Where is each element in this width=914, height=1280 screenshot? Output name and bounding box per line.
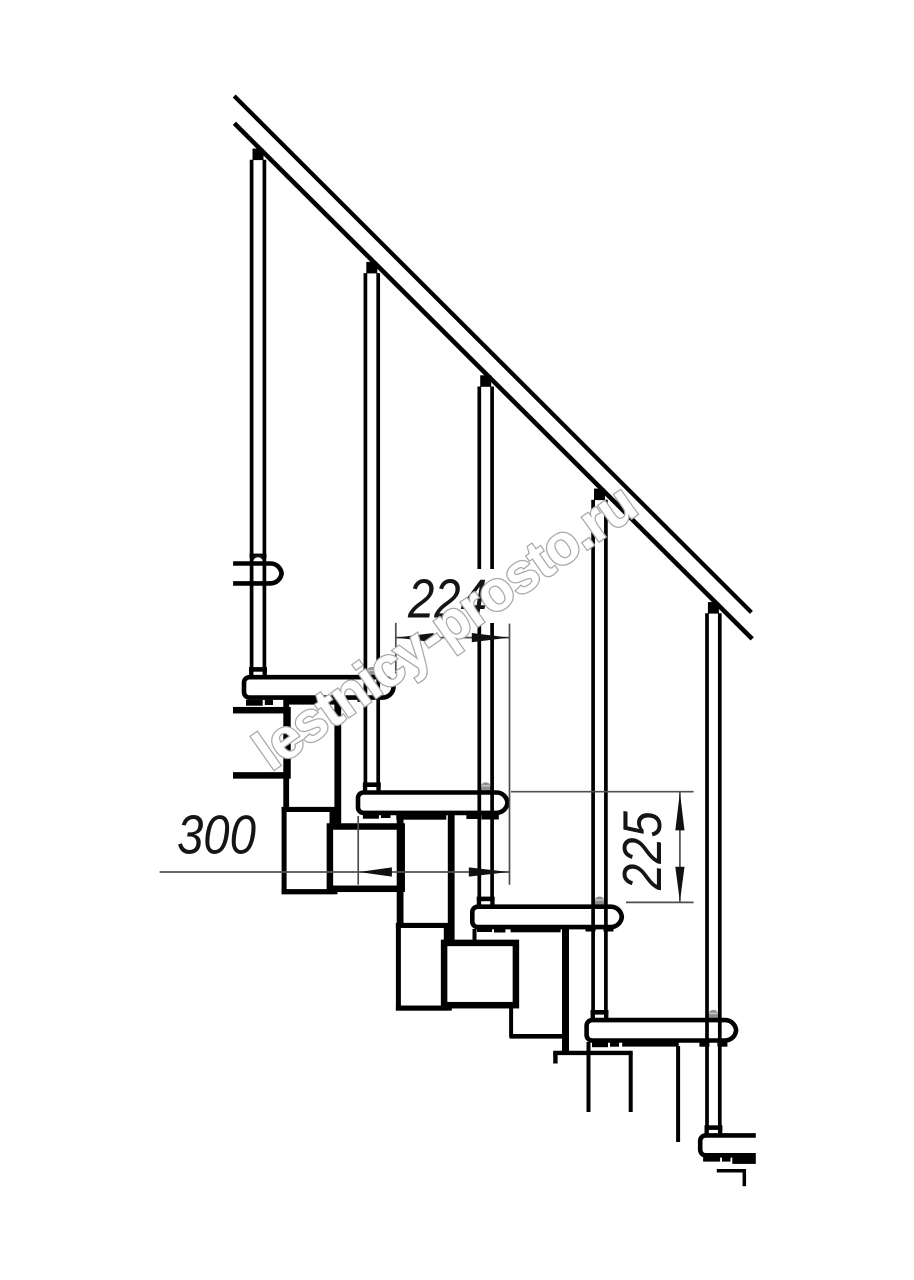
svg-text:300: 300 <box>177 804 256 865</box>
svg-text:225: 225 <box>612 811 673 891</box>
